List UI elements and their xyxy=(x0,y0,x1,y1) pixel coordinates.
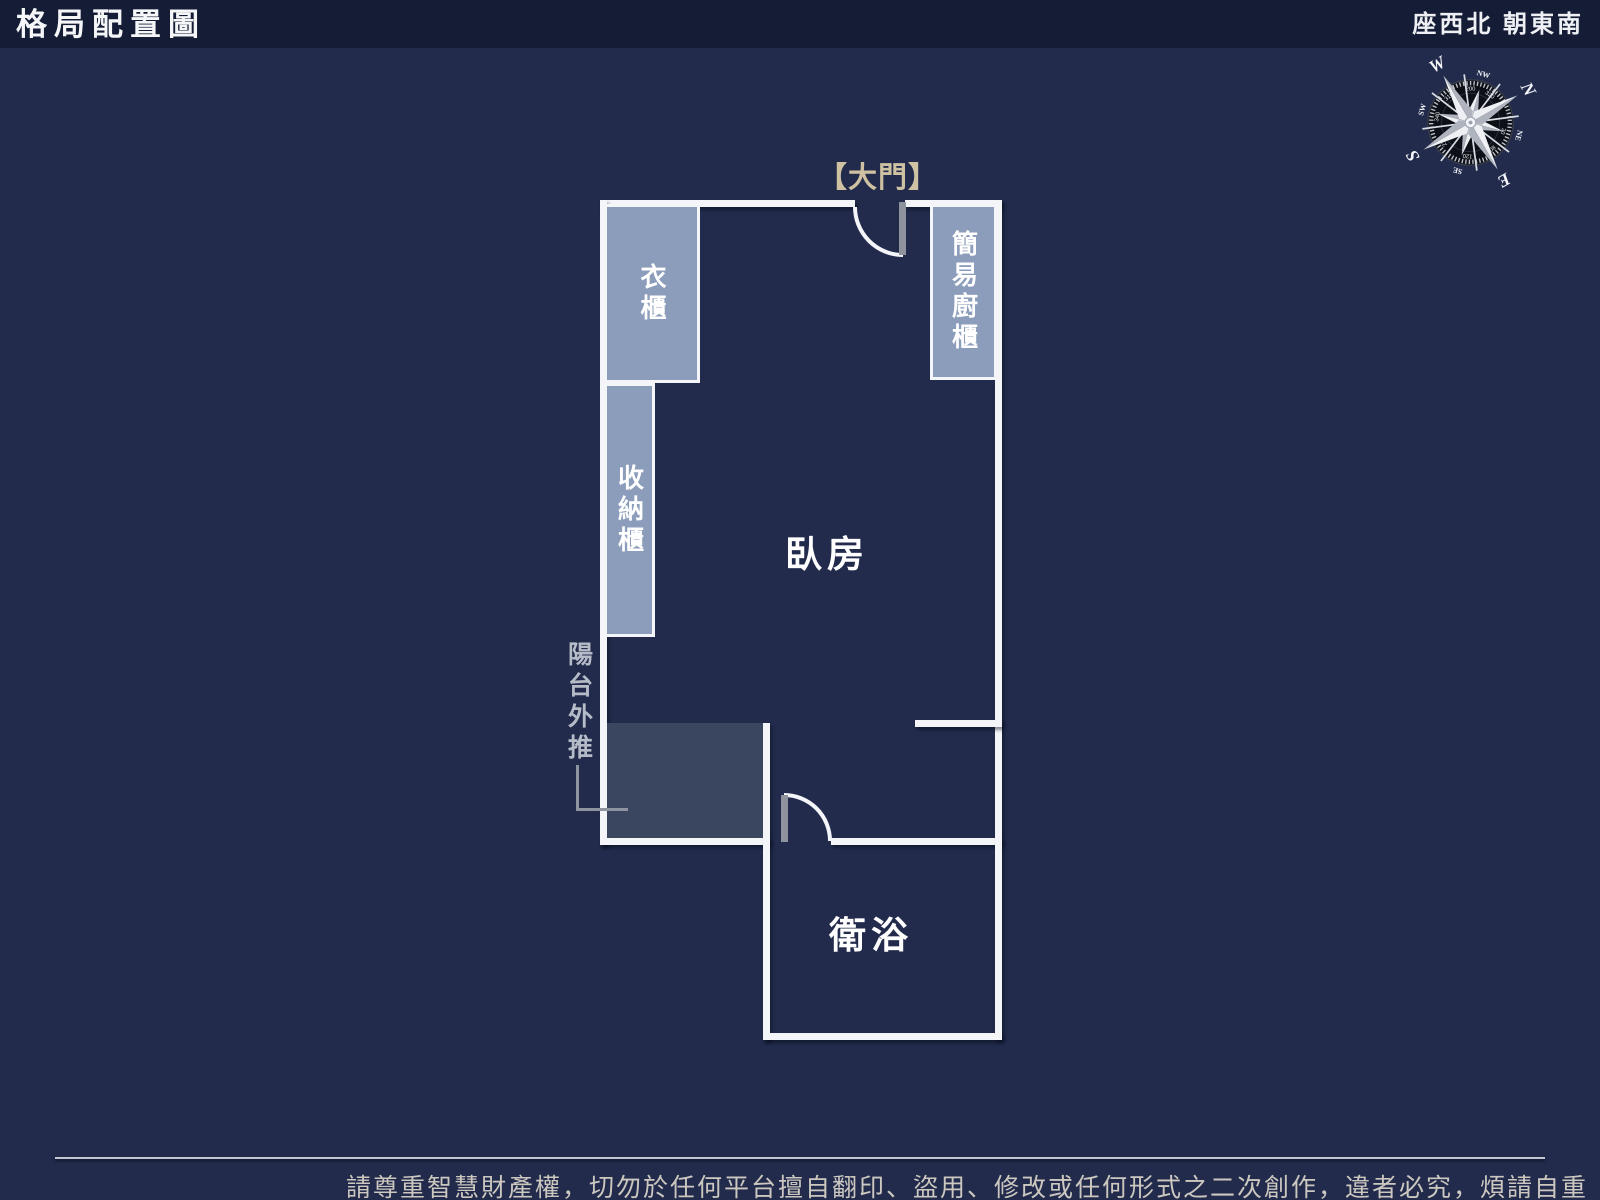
compass-intercardinal-points xyxy=(1432,84,1509,161)
kitchen-cabinet: 簡易廚櫃 xyxy=(930,204,997,380)
balcony-leader-vertical xyxy=(576,765,579,811)
compass-label-s: S xyxy=(1401,147,1423,165)
compass-degree: 210 xyxy=(1438,136,1448,147)
compass-disc xyxy=(1412,64,1529,181)
compass-hub-dot xyxy=(1468,120,1473,125)
page-title: 格局配置圖 xyxy=(16,0,206,50)
main-door-panel xyxy=(899,202,906,255)
compass-label-ne: NE xyxy=(1513,129,1524,142)
balcony-label: 陽台外推 xyxy=(566,641,591,765)
compass-label-sw: SW xyxy=(1416,102,1428,116)
wardrobe-cabinet: 衣櫃 xyxy=(604,204,700,383)
header-bar: 格局配置圖 座西北 朝東南 xyxy=(0,0,1600,48)
compass-label-w: W xyxy=(1425,51,1450,77)
orientation-label: 座西北 朝東南 xyxy=(1412,0,1584,50)
wardrobe-label: 衣櫃 xyxy=(639,263,665,325)
compass-label-n: N xyxy=(1516,78,1541,101)
footer-disclaimer: 請尊重智慧財產權，切勿於任何平台擅自翻印、盜用、修改或任何形式之二次創作，違者必… xyxy=(346,1168,1546,1200)
footer-divider xyxy=(55,1157,1545,1159)
entrance-label: 【大門】 xyxy=(818,154,938,196)
wall-right-stub xyxy=(915,720,1002,727)
door-overlay xyxy=(0,0,1600,1200)
balcony-leader-horizontal xyxy=(576,808,628,811)
kitchen-label: 簡易廚櫃 xyxy=(951,230,977,354)
wall-divider xyxy=(763,723,770,1040)
storage-label: 收納櫃 xyxy=(617,464,643,557)
compass-degree: 200 xyxy=(1466,86,1476,92)
storage-cabinet: 收納櫃 xyxy=(604,383,655,637)
bathroom-door-panel xyxy=(781,795,788,842)
compass-inner-ring xyxy=(1431,83,1511,163)
bedroom-label: 臥房 xyxy=(785,524,869,578)
compass-degree: 340 xyxy=(1434,111,1442,122)
wall-bathroom-top xyxy=(831,838,1002,845)
compass-hub xyxy=(1463,115,1478,130)
compass-degree: 310 xyxy=(1444,92,1455,103)
bathroom-door-arc xyxy=(784,795,830,841)
bathroom-label: 衛浴 xyxy=(829,905,913,959)
compass-degree: 120 xyxy=(1463,152,1473,159)
main-door-arc xyxy=(855,207,903,255)
compass-cardinal-points xyxy=(1396,48,1544,196)
compass-label-nw: NW xyxy=(1476,68,1491,80)
wall-bathroom-bottom xyxy=(763,1033,1002,1040)
compass-tick-ring xyxy=(1417,69,1524,176)
compass-rose: 200 320 30 80 120 210 340 310 xyxy=(1388,40,1553,205)
compass-minor-spikes xyxy=(1409,61,1531,183)
compass-degree: 80 xyxy=(1487,143,1496,152)
floorplan-page: 格局配置圖 座西北 朝東南 衣櫃 收納櫃 簡易廚櫃 xyxy=(0,0,1600,1200)
balcony-area xyxy=(607,723,763,838)
compass-label-e: E xyxy=(1494,169,1515,193)
compass-degree: 30 xyxy=(1499,127,1506,135)
compass-label-se: SE xyxy=(1452,165,1463,176)
wall-bottom-left xyxy=(600,838,770,845)
compass-degree: 320 xyxy=(1484,90,1495,100)
